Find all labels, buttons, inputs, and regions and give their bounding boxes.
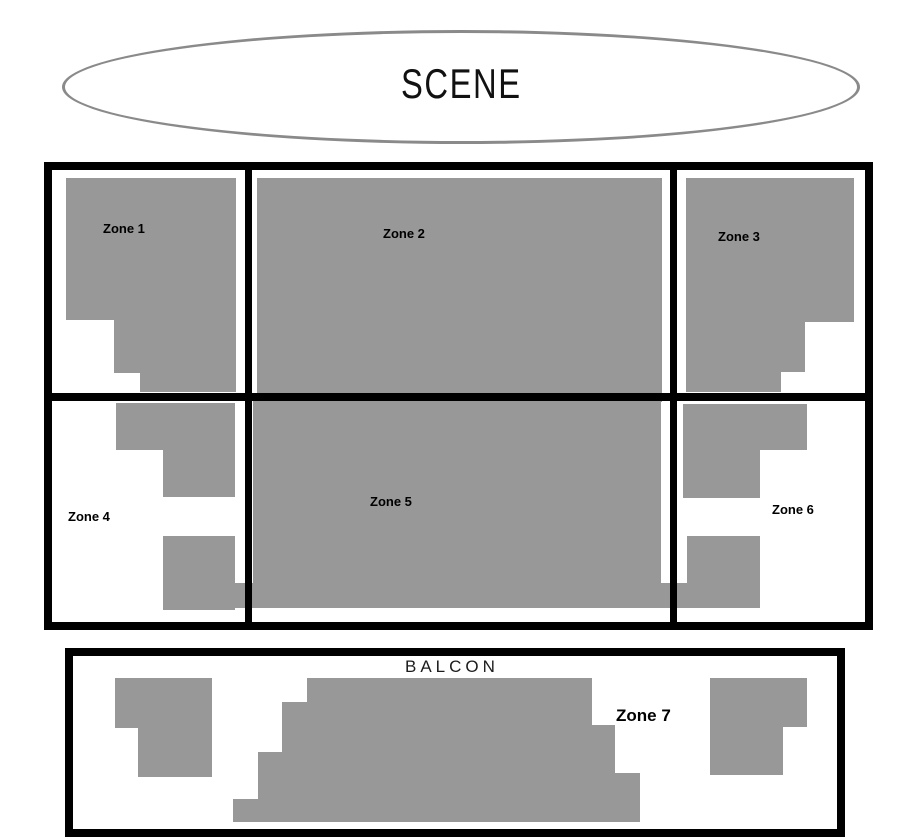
stage-ellipse: SCENE	[62, 30, 860, 144]
zone-4-label: Zone 4	[68, 510, 110, 523]
zone-2-label: Zone 2	[383, 227, 425, 240]
balcony-title: BALCON	[405, 658, 499, 675]
hall-divider-horizontal	[44, 393, 873, 401]
zone-7-label: Zone 7	[616, 707, 671, 724]
zone-6-label: Zone 6	[772, 503, 814, 516]
stage-label: SCENE	[401, 60, 522, 114]
zone-3-label: Zone 3	[718, 230, 760, 243]
balcony-outline	[65, 648, 845, 837]
seating-map: SCENE Zone 1 Zone 2 Zone 3 Zone 4 Zone 5…	[0, 0, 905, 837]
zone-1-label: Zone 1	[103, 222, 145, 235]
zone-5-label: Zone 5	[370, 495, 412, 508]
